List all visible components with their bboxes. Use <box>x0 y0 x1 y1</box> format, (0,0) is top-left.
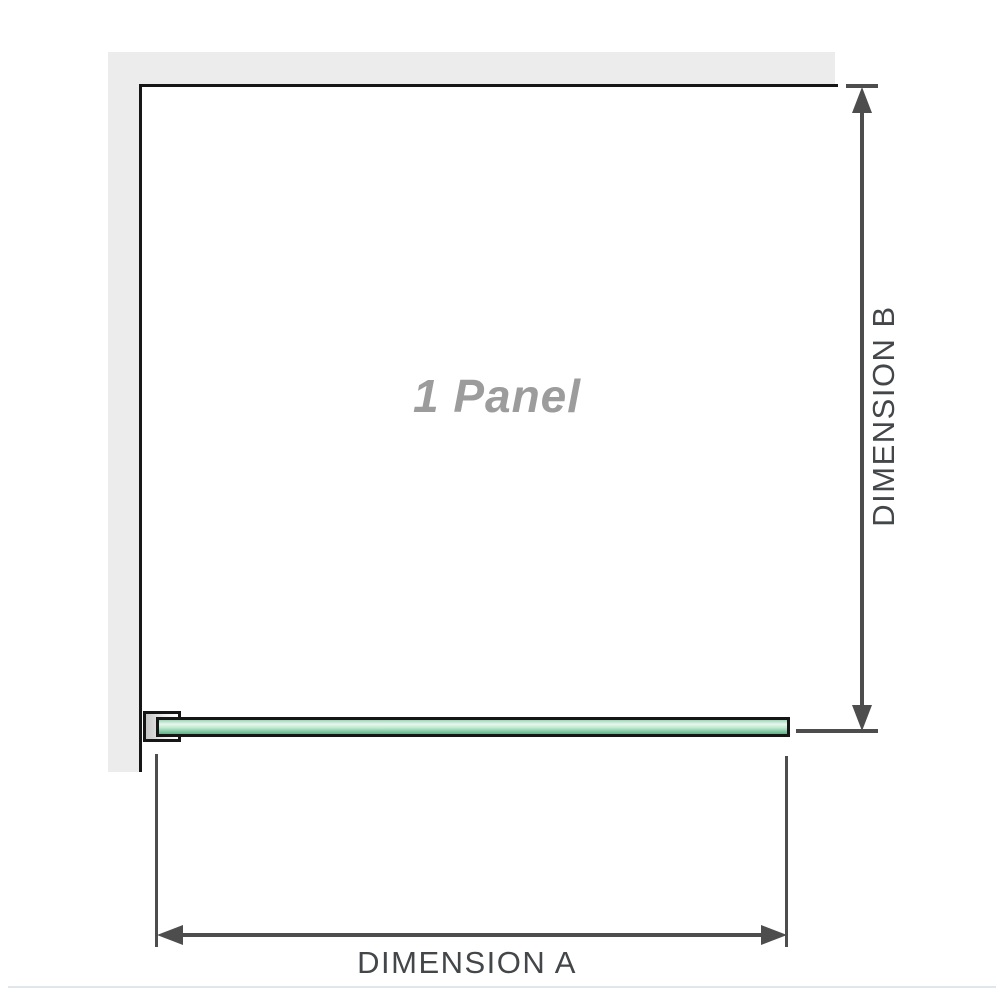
wall-side-band <box>108 52 139 772</box>
dimension-arrow-left-icon <box>157 925 183 945</box>
dimension-a-label: DIMENSION A <box>357 945 577 981</box>
dimension-b-line <box>860 95 864 720</box>
dimension-arrow-down-icon <box>852 705 872 731</box>
panel-left-edge <box>139 84 142 772</box>
glass-panel-strip <box>156 717 790 737</box>
panel-dimension-diagram: 1 Panel DIMENSION B DIMENSION A <box>0 0 1000 1000</box>
dimension-a-left-extension <box>155 754 158 947</box>
wall-top-band <box>108 52 835 85</box>
dimension-arrow-right-icon <box>761 925 787 945</box>
dimension-a-line <box>168 933 776 937</box>
dimension-a-right-extension <box>785 756 788 947</box>
panel-top-edge <box>139 84 838 87</box>
dimension-arrow-up-icon <box>852 87 872 113</box>
dimension-b-label: DIMENSION B <box>866 305 902 526</box>
panel-count-label: 1 Panel <box>413 369 581 423</box>
bottom-divider <box>8 986 996 988</box>
